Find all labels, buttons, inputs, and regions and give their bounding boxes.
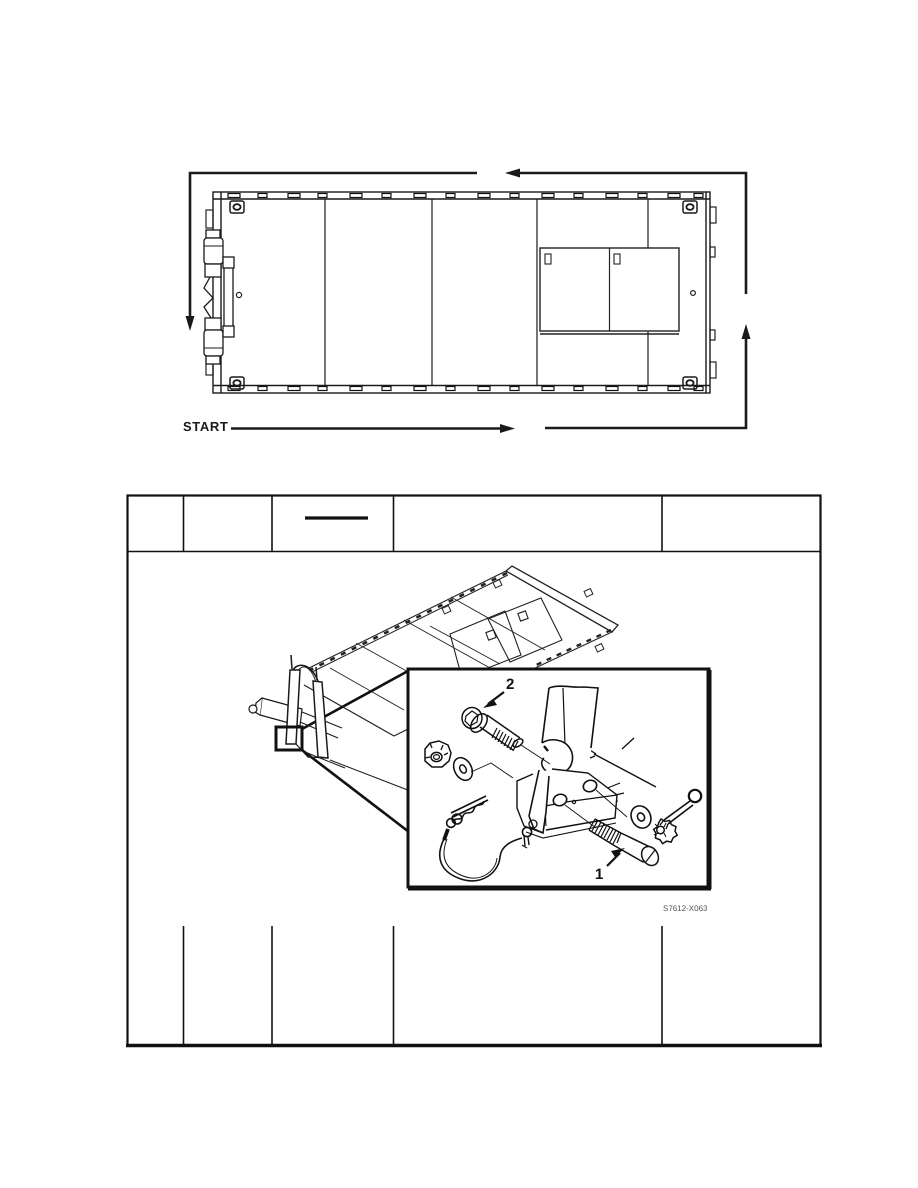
svg-text:2: 2: [506, 676, 514, 693]
svg-text:START: START: [183, 419, 228, 434]
svg-text:S7612-X063: S7612-X063: [663, 904, 708, 913]
svg-text:1: 1: [595, 866, 603, 883]
